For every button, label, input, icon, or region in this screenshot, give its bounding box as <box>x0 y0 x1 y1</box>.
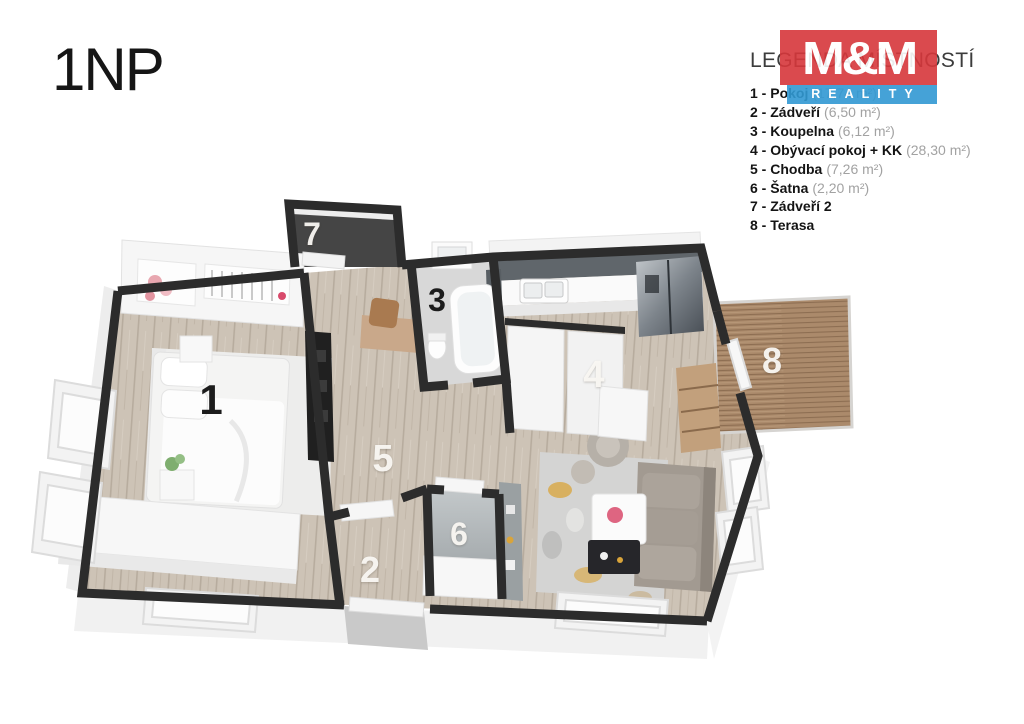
chair <box>368 297 400 329</box>
room-label-4: 4 <box>583 356 604 394</box>
floorplan-rendering <box>0 0 1024 724</box>
room-label-1: 1 <box>199 379 222 421</box>
room-label-2: 2 <box>360 552 380 588</box>
bedside-table <box>180 336 212 362</box>
coffee-table-black <box>588 540 640 574</box>
floorplan-page: 1NP LEGENDA MÍSTNOSTÍ 1 - Pokoj(17,74 m²… <box>0 0 1024 724</box>
room-label-3: 3 <box>428 284 446 316</box>
room-label-8: 8 <box>762 343 782 379</box>
door-leaf-hall <box>598 386 648 441</box>
room-label-5: 5 <box>372 440 393 478</box>
ottoman <box>571 460 595 484</box>
room-label-7: 7 <box>303 218 321 250</box>
hall-closet-1 <box>507 326 564 432</box>
plant-table <box>160 470 194 500</box>
room-label-6: 6 <box>450 518 468 550</box>
